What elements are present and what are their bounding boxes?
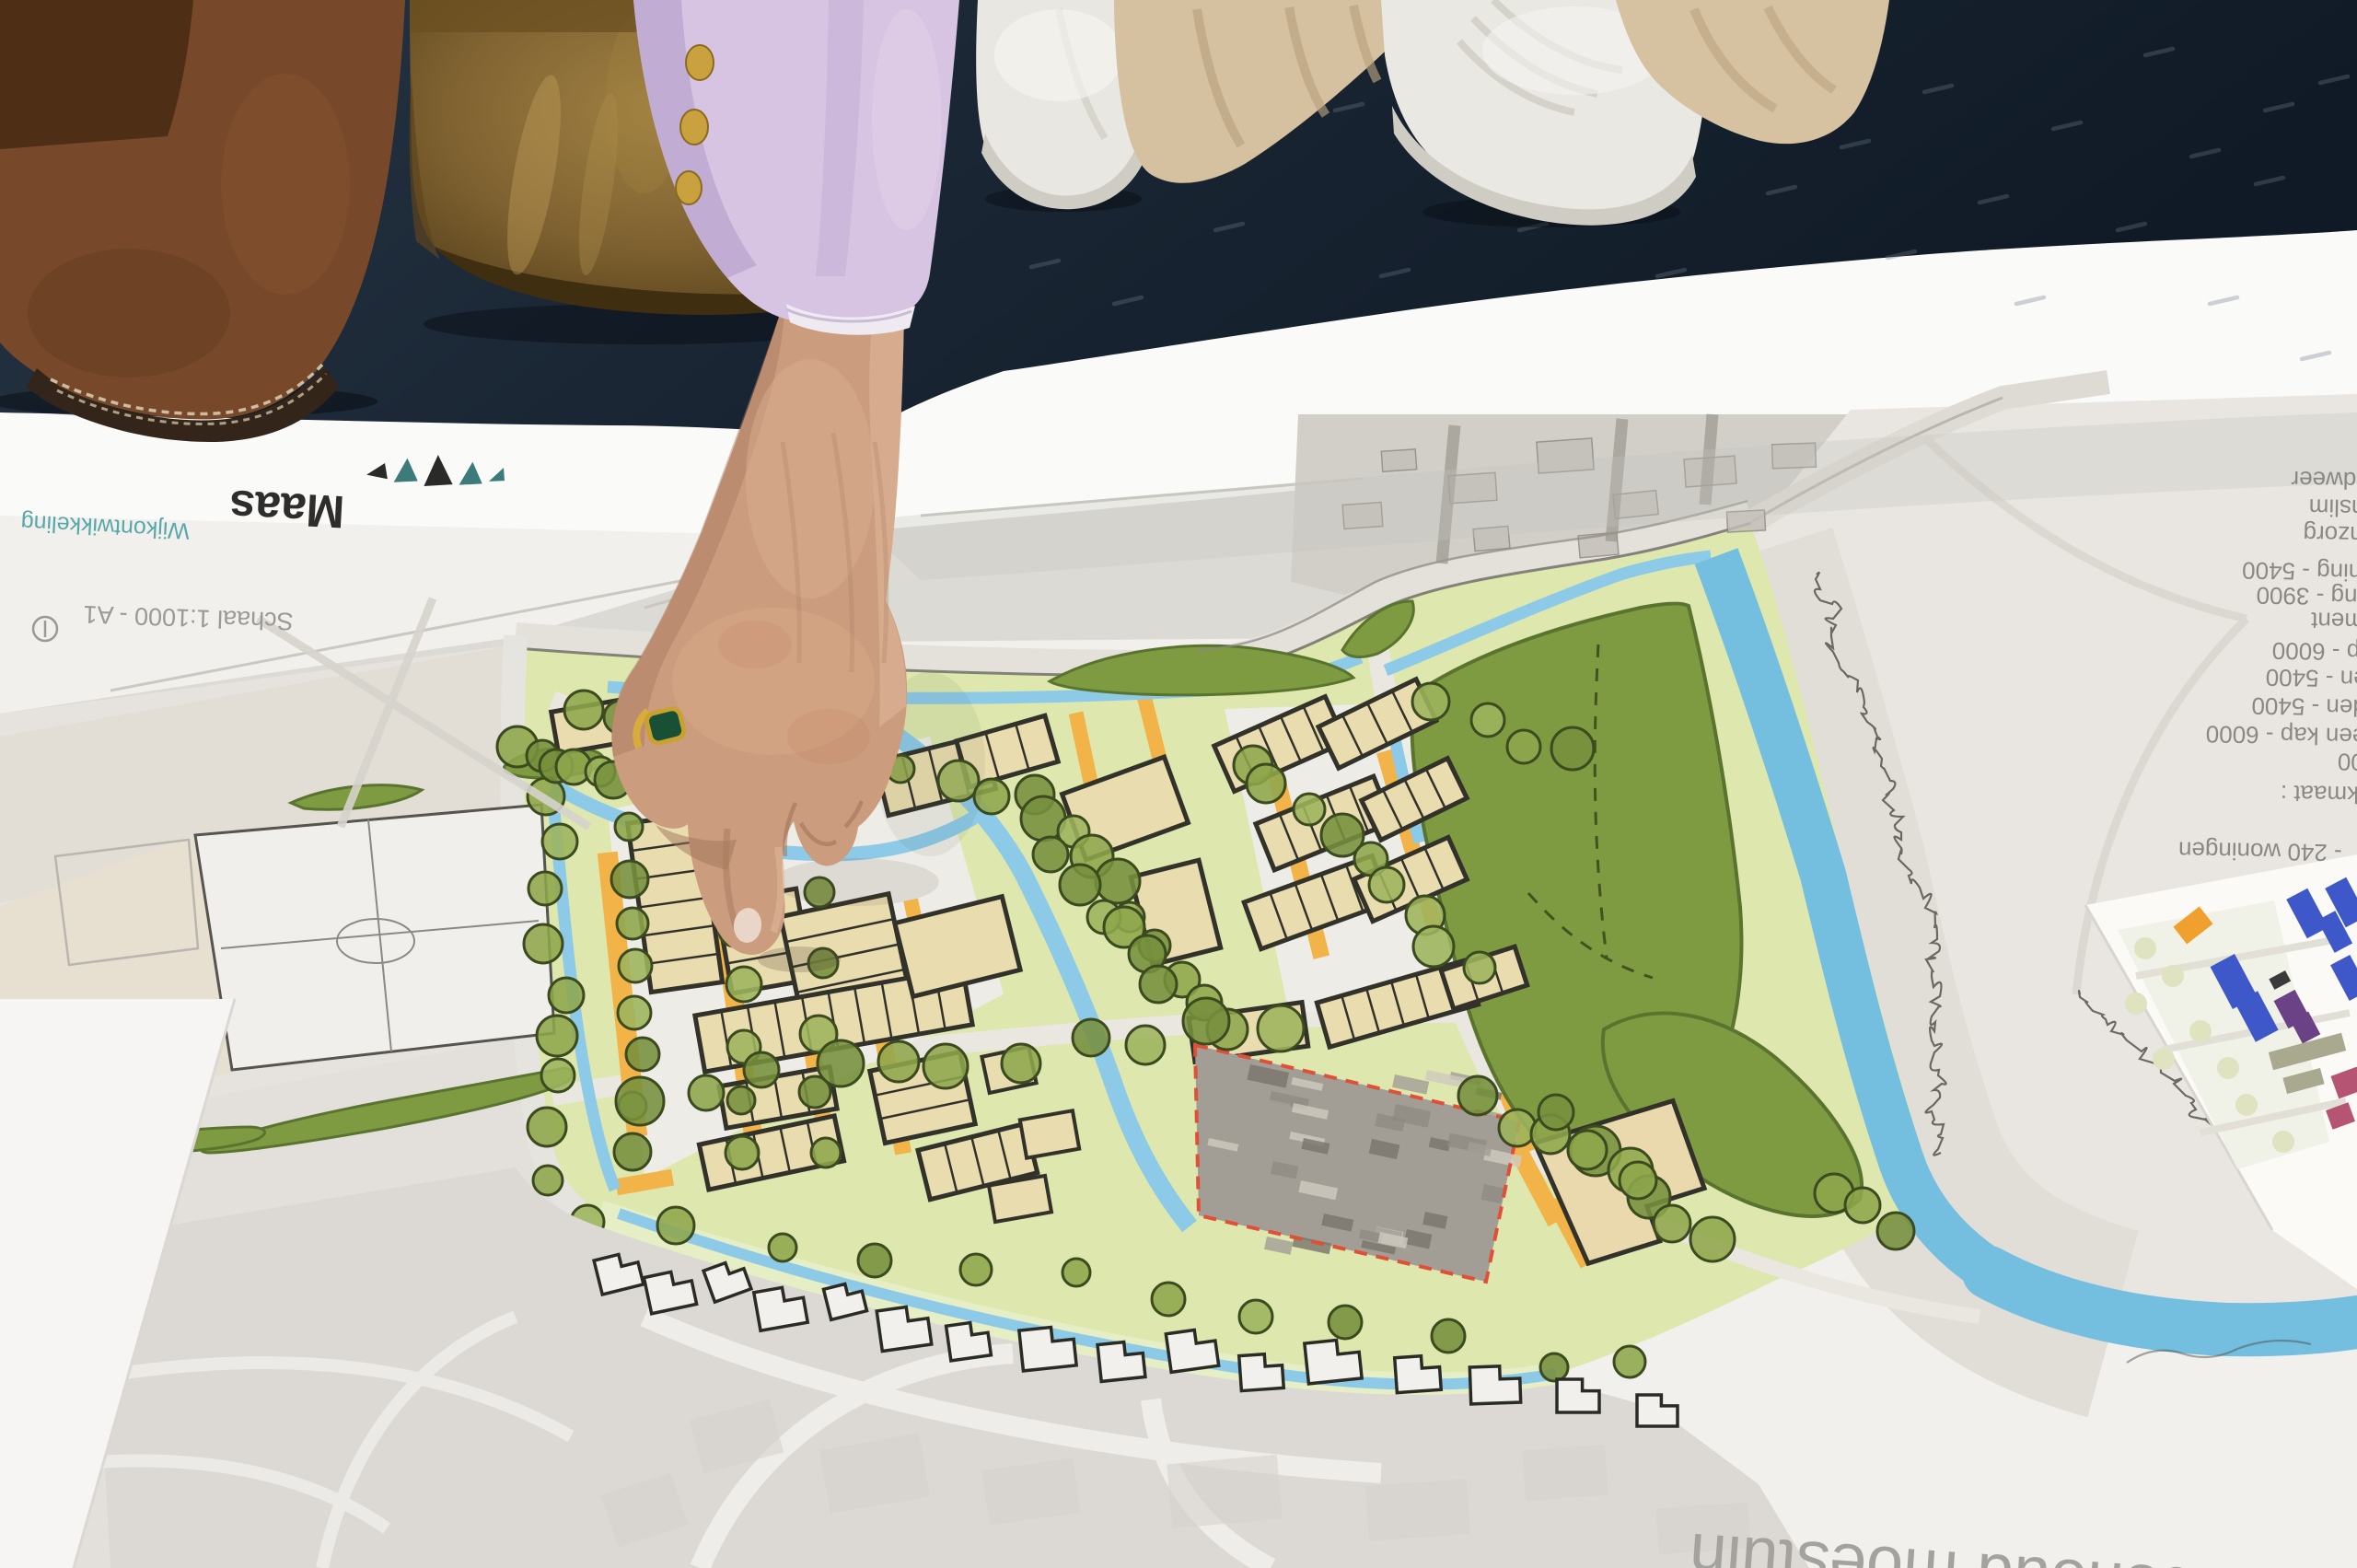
svg-text:blokmaat :: blokmaat : (2281, 780, 2357, 809)
svg-text:-oonslim: -oonslim (2308, 494, 2357, 523)
svg-text:oning - 3900: oning - 3900 (2256, 582, 2357, 612)
svg-text:-000: -000 (2338, 749, 2357, 777)
svg-text:Maas: Maas (228, 481, 346, 538)
svg-text:oden - 5400: oden - 5400 (2251, 692, 2357, 722)
svg-text:-een kap - 6000: -een kap - 6000 (2206, 720, 2357, 750)
svg-text:erandweer: erandweer (2291, 466, 2357, 495)
svg-text:tement: tement (2310, 607, 2357, 635)
svg-text:-oonzorg: -oonzorg (2303, 520, 2357, 550)
svg-text:nen - 5400: nen - 5400 (2265, 664, 2357, 693)
svg-text:loop - 6000: loop - 6000 (2272, 637, 2357, 667)
